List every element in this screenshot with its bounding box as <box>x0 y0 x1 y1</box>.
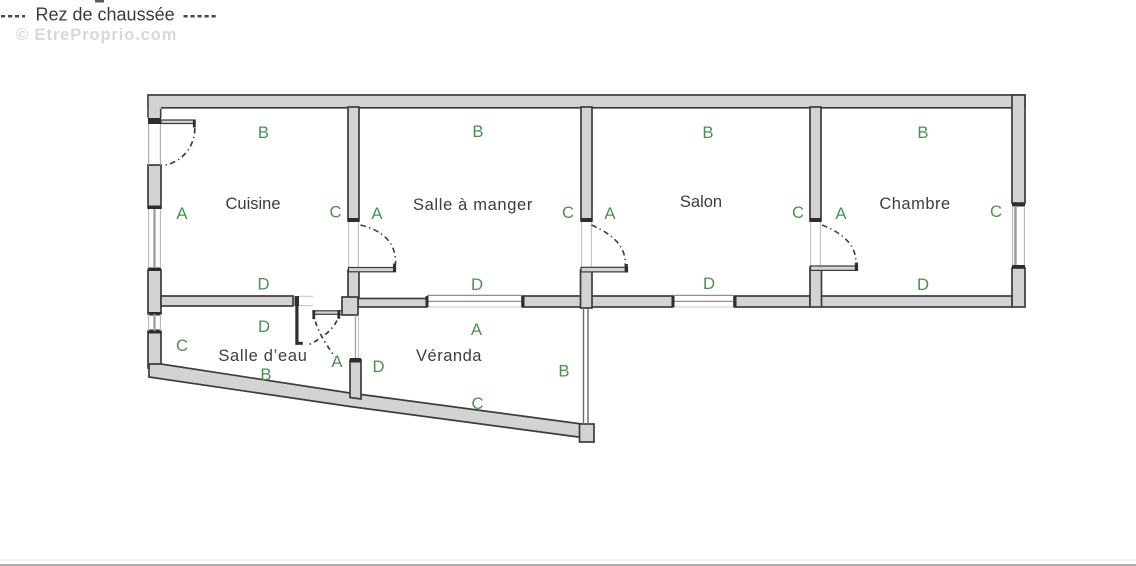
svg-text:C: C <box>176 336 188 355</box>
svg-text:Salle à manger: Salle à manger <box>413 196 533 214</box>
svg-text:A: A <box>835 204 847 223</box>
svg-text:C: C <box>329 203 341 222</box>
svg-text:A: A <box>471 320 483 339</box>
svg-text:© EtreProprio.com: © EtreProprio.com <box>16 26 177 44</box>
svg-text:B: B <box>917 123 928 142</box>
svg-text:Salle d’eau: Salle d’eau <box>218 347 307 365</box>
svg-text:B: B <box>702 123 713 142</box>
svg-text:C: C <box>990 202 1002 221</box>
svg-text:Salon: Salon <box>680 193 722 211</box>
svg-text:Chambre: Chambre <box>879 195 950 213</box>
svg-text:D: D <box>917 275 929 294</box>
svg-text:B: B <box>558 362 569 381</box>
svg-text:D: D <box>258 317 270 336</box>
svg-text:B: B <box>472 122 483 141</box>
svg-text:D: D <box>471 275 483 294</box>
svg-text:Cuisine: Cuisine <box>225 195 280 213</box>
svg-text:A: A <box>176 204 188 223</box>
svg-text:C: C <box>471 394 483 413</box>
svg-text:Rez de chaussée: Rez de chaussée <box>36 5 175 25</box>
svg-text:C: C <box>562 203 574 222</box>
svg-text:A: A <box>604 204 616 223</box>
svg-text:A: A <box>331 352 343 371</box>
svg-text:C: C <box>792 203 804 222</box>
svg-text:B: B <box>260 365 271 384</box>
svg-text:D: D <box>257 275 269 294</box>
svg-text:D: D <box>703 274 715 293</box>
svg-text:Véranda: Véranda <box>416 347 482 365</box>
svg-text:B: B <box>258 123 269 142</box>
svg-text:A: A <box>371 204 383 223</box>
svg-text:D: D <box>372 357 384 376</box>
